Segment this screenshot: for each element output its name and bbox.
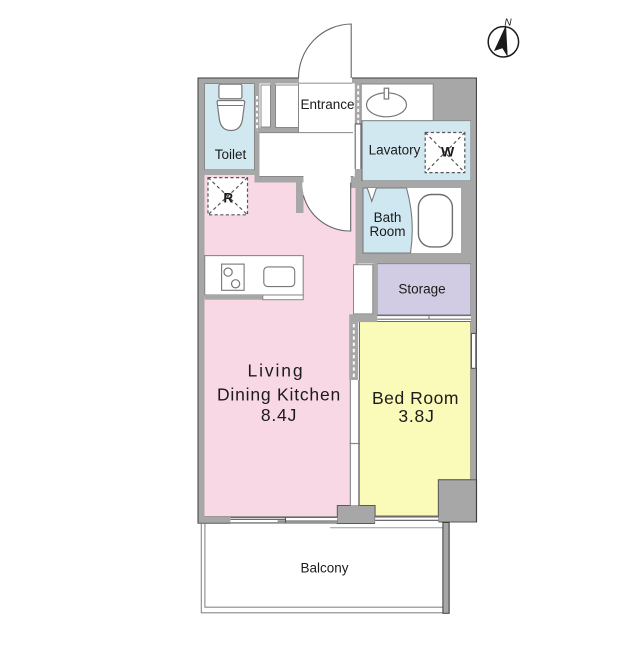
svg-text:Bath: Bath bbox=[374, 210, 402, 225]
svg-text:N: N bbox=[504, 18, 512, 29]
svg-text:Storage: Storage bbox=[398, 282, 445, 297]
svg-text:Toilet: Toilet bbox=[215, 147, 247, 162]
svg-text:Dining Kitchen: Dining Kitchen bbox=[217, 385, 341, 405]
svg-text:3.8J: 3.8J bbox=[398, 406, 434, 426]
svg-text:Living: Living bbox=[247, 361, 304, 381]
svg-text:R: R bbox=[223, 190, 233, 205]
svg-text:Balcony: Balcony bbox=[300, 561, 348, 576]
svg-text:Bed Room: Bed Room bbox=[372, 388, 459, 408]
svg-text:8.4J: 8.4J bbox=[261, 405, 297, 425]
svg-text:W: W bbox=[441, 144, 455, 160]
svg-text:Lavatory: Lavatory bbox=[369, 143, 421, 158]
svg-text:Entrance: Entrance bbox=[300, 97, 354, 112]
svg-text:Room: Room bbox=[369, 224, 405, 239]
